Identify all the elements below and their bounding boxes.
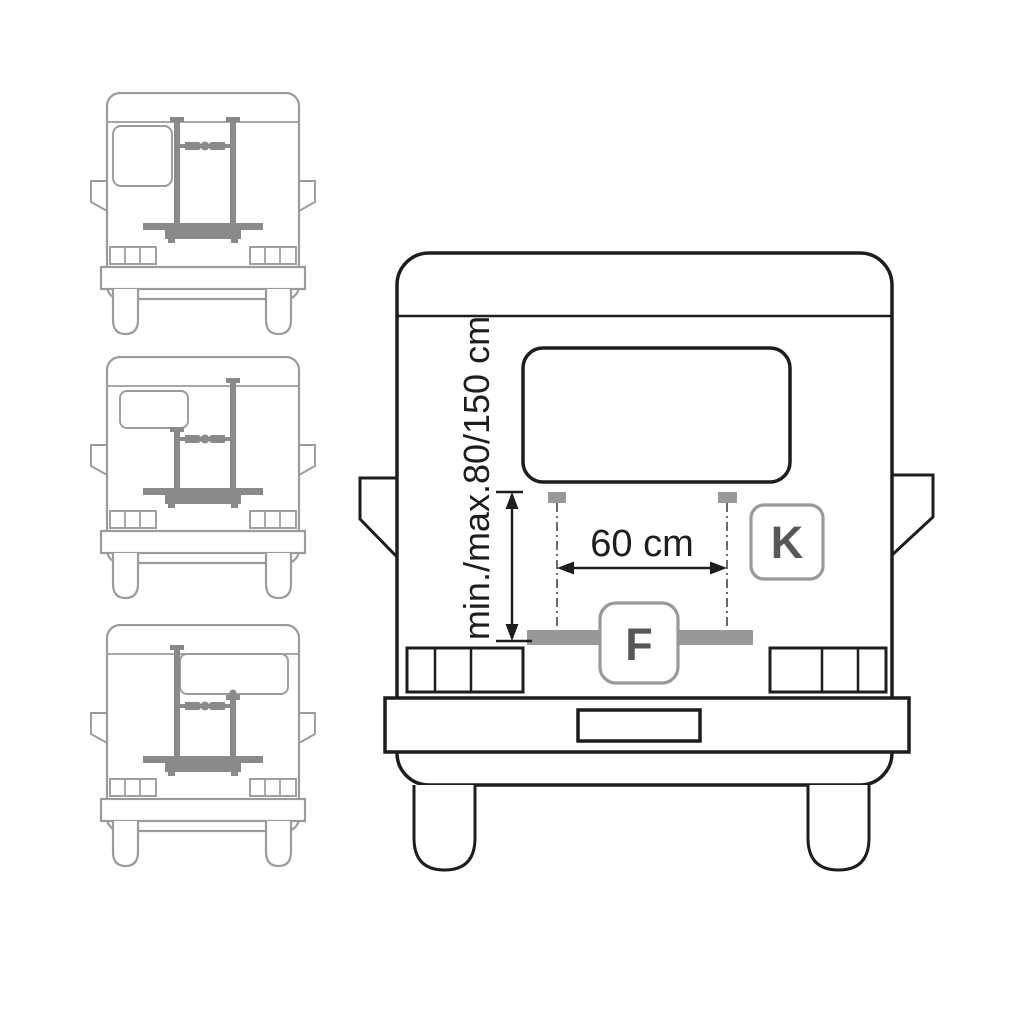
installation-diagram: 60 cm min./max.80/150 cm F K	[0, 0, 1024, 1024]
wheel-right	[266, 553, 291, 598]
vertical-dimension-label: min./max.80/150 cm	[456, 316, 497, 640]
right-flap	[299, 181, 315, 211]
bumper	[101, 267, 305, 289]
rear-window	[120, 391, 188, 428]
platform-foot-left	[168, 239, 175, 243]
taillight-right	[250, 511, 296, 528]
wheel-left	[113, 553, 138, 598]
wheel-right	[266, 289, 291, 334]
thumbnail-van-1	[88, 92, 318, 337]
wheel-left	[113, 821, 138, 866]
connector-knob	[201, 435, 210, 444]
taillight-right	[250, 247, 296, 264]
rack-rail-right	[230, 119, 236, 231]
f-badge: F	[600, 603, 678, 683]
rear-window	[113, 126, 172, 186]
right-flap	[299, 713, 315, 743]
platform-base	[165, 495, 241, 504]
rear-window	[180, 654, 288, 694]
right-flap	[299, 445, 315, 475]
platform-foot-right	[231, 239, 238, 243]
left-flap	[91, 713, 107, 743]
k-badge: K	[751, 505, 823, 579]
bumper	[101, 799, 305, 821]
mount-point-right	[718, 492, 737, 503]
k-badge-label: K	[771, 517, 804, 568]
platform-foot-right	[231, 504, 238, 508]
left-flap	[91, 445, 107, 475]
f-badge-label: F	[625, 619, 653, 670]
wheel-left	[113, 289, 138, 334]
bumper	[101, 531, 305, 553]
left-flap	[360, 478, 397, 557]
rail-knob-right	[230, 690, 237, 697]
wheel-left	[414, 785, 475, 870]
rack-rail-left	[174, 119, 180, 231]
platform-bar	[143, 756, 263, 763]
platform-bar	[143, 223, 263, 230]
left-flap	[91, 181, 107, 211]
taillight-right	[770, 648, 886, 692]
wheel-right	[808, 785, 869, 870]
platform-bar	[143, 488, 263, 495]
platform-base	[165, 763, 241, 772]
taillight-left	[110, 779, 156, 796]
platform-foot-left	[168, 772, 175, 776]
taillight-left	[407, 648, 523, 692]
platform-foot-left	[168, 504, 175, 508]
taillight-left	[110, 511, 156, 528]
connector-knob	[201, 142, 210, 151]
platform-base	[165, 230, 241, 239]
right-flap	[892, 475, 933, 555]
mount-point-left	[548, 492, 566, 503]
taillight-right	[250, 779, 296, 796]
taillight-left	[110, 247, 156, 264]
main-van-diagram: 60 cm min./max.80/150 cm F K	[355, 245, 940, 875]
platform-foot-right	[231, 772, 238, 776]
license-plate	[578, 710, 700, 741]
width-dimension-label: 60 cm	[590, 523, 693, 565]
thumbnail-van-3	[88, 624, 318, 869]
thumbnail-van-2	[88, 356, 318, 601]
connector-knob	[201, 702, 210, 711]
rear-window	[523, 348, 790, 482]
wheel-right	[266, 821, 291, 866]
